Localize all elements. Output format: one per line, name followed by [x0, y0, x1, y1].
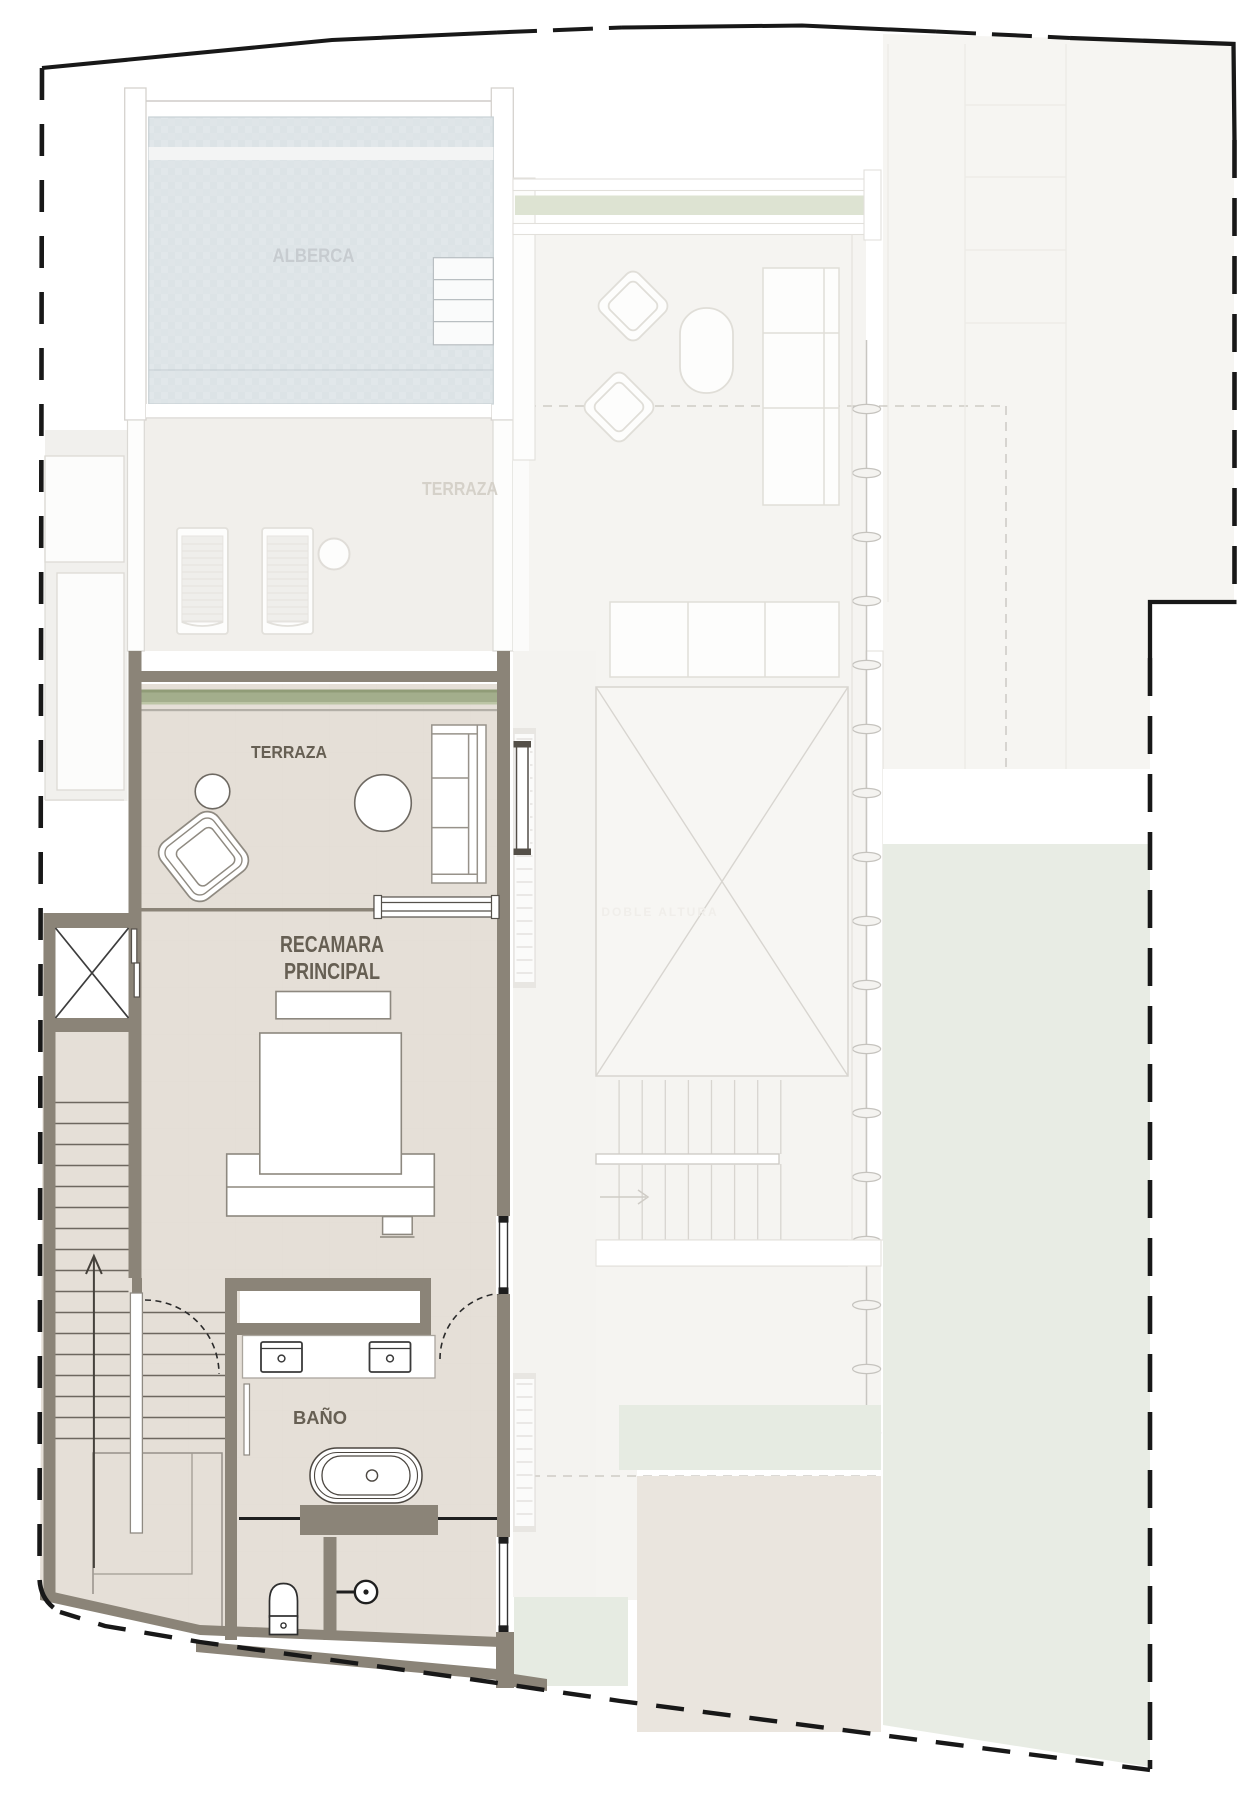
svg-text:TERRAZA: TERRAZA — [251, 742, 327, 762]
svg-text:PRINCIPAL: PRINCIPAL — [284, 958, 380, 984]
svg-text:BAÑO: BAÑO — [293, 1407, 347, 1428]
svg-text:RECAMARA: RECAMARA — [280, 931, 384, 957]
svg-text:ALBERCA: ALBERCA — [273, 246, 355, 267]
svg-text:TERRAZA: TERRAZA — [422, 478, 498, 499]
svg-text:DOBLE ALTURA: DOBLE ALTURA — [601, 905, 718, 919]
